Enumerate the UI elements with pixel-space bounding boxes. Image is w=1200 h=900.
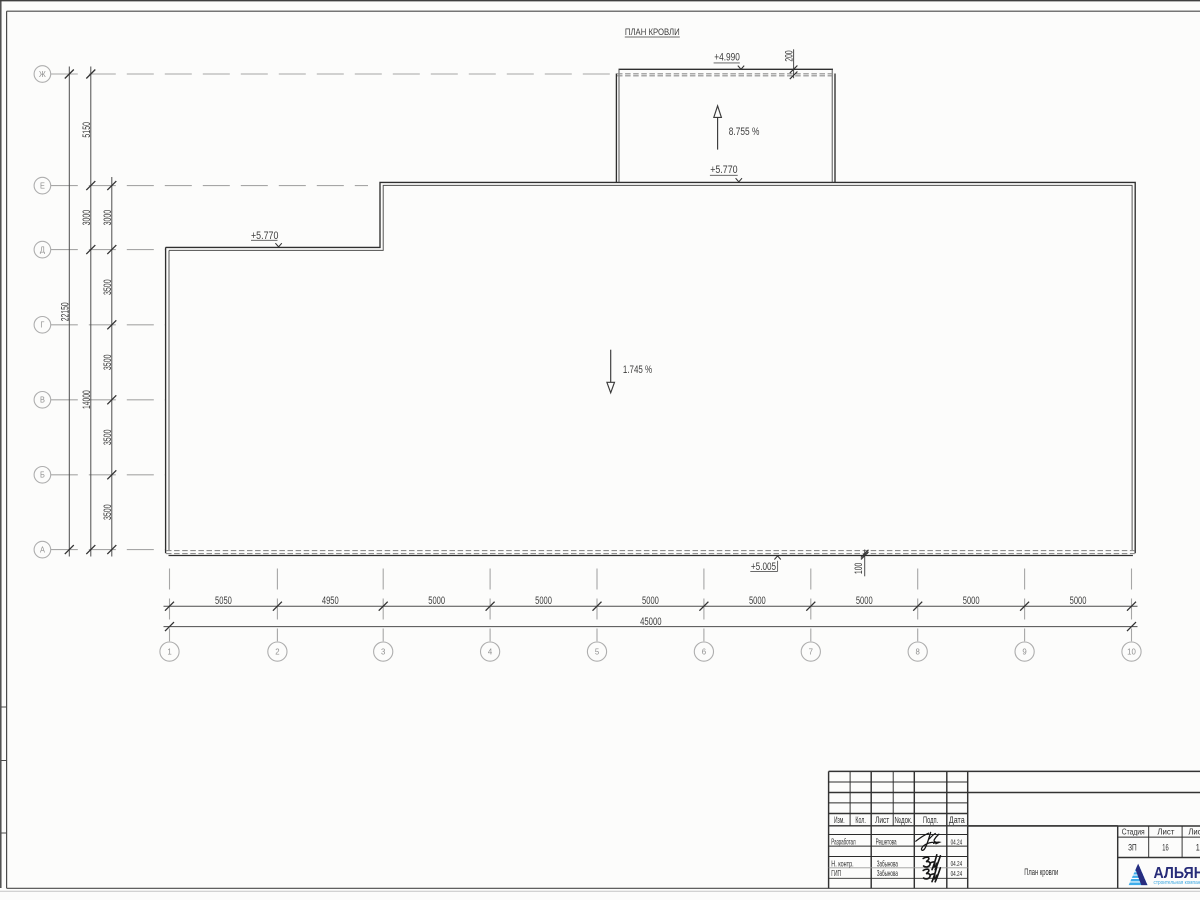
svg-text:Решетова: Решетова xyxy=(876,838,897,847)
svg-text:04.24: 04.24 xyxy=(951,870,963,878)
svg-text:1: 1 xyxy=(167,647,172,656)
svg-text:3500: 3500 xyxy=(101,355,113,371)
svg-text:Стадия: Стадия xyxy=(1122,827,1145,837)
svg-text:Ж: Ж xyxy=(39,70,46,79)
svg-text:+4.990: +4.990 xyxy=(714,52,740,64)
svg-text:14000: 14000 xyxy=(80,390,92,409)
svg-text:Кол.: Кол. xyxy=(855,815,865,826)
svg-text:5000: 5000 xyxy=(1070,595,1087,608)
svg-text:ГИП: ГИП xyxy=(831,870,841,879)
svg-text:5000: 5000 xyxy=(963,595,980,608)
svg-text:План кровли: План кровли xyxy=(1024,867,1058,878)
svg-text:Забынова: Забынова xyxy=(877,859,898,869)
svg-text:5000: 5000 xyxy=(428,595,445,608)
svg-text:8.755 %: 8.755 % xyxy=(729,126,760,138)
svg-text:3: 3 xyxy=(381,647,386,656)
svg-text:1.745 %: 1.745 % xyxy=(623,364,653,377)
svg-text:Б: Б xyxy=(40,470,45,479)
svg-text:Разработал: Разработал xyxy=(831,837,855,847)
svg-text:Е: Е xyxy=(40,181,45,190)
svg-text:5050: 5050 xyxy=(215,595,232,608)
svg-text:7: 7 xyxy=(809,647,814,656)
svg-text:Забынова: Забынова xyxy=(877,869,898,879)
svg-text:3500: 3500 xyxy=(101,504,113,520)
svg-text:Изм.: Изм. xyxy=(834,815,845,826)
svg-text:Подп.: Подп. xyxy=(923,815,938,826)
svg-text:Дата: Дата xyxy=(949,815,965,825)
svg-text:№док.: №док. xyxy=(894,815,912,825)
svg-text:+5.770: +5.770 xyxy=(710,164,738,176)
svg-text:строительная компания: строительная компания xyxy=(1154,881,1200,886)
svg-text:8: 8 xyxy=(916,647,921,656)
svg-text:Лист: Лист xyxy=(875,815,890,825)
svg-text:5000: 5000 xyxy=(856,595,873,608)
svg-text:А: А xyxy=(40,545,46,554)
svg-text:5000: 5000 xyxy=(642,595,659,608)
svg-text:45000: 45000 xyxy=(640,616,661,629)
svg-text:17: 17 xyxy=(1196,842,1200,853)
svg-text:10: 10 xyxy=(1127,647,1136,656)
svg-text:В: В xyxy=(40,395,45,404)
svg-text:04.24: 04.24 xyxy=(951,860,963,868)
svg-text:3000: 3000 xyxy=(101,210,113,226)
svg-text:Лист: Лист xyxy=(1157,827,1174,836)
svg-text:АЛЬЯНС: АЛЬЯНС xyxy=(1154,865,1200,882)
svg-text:Листов: Листов xyxy=(1188,827,1200,836)
svg-text:2: 2 xyxy=(275,647,280,656)
svg-text:5: 5 xyxy=(595,647,600,656)
svg-text:Н. контр.: Н. контр. xyxy=(831,860,853,868)
svg-text:22150: 22150 xyxy=(59,302,71,321)
svg-text:04.24: 04.24 xyxy=(951,838,963,846)
svg-text:5000: 5000 xyxy=(535,595,552,608)
svg-text:200: 200 xyxy=(783,50,795,61)
svg-text:4950: 4950 xyxy=(322,595,339,608)
svg-text:16: 16 xyxy=(1162,842,1169,853)
svg-text:100: 100 xyxy=(852,563,864,574)
svg-text:ПЛАН КРОВЛИ: ПЛАН КРОВЛИ xyxy=(625,26,680,37)
svg-text:9: 9 xyxy=(1022,647,1027,656)
svg-text:5000: 5000 xyxy=(749,595,766,608)
svg-text:6: 6 xyxy=(702,647,707,656)
svg-text:4: 4 xyxy=(488,647,493,656)
svg-text:3500: 3500 xyxy=(101,279,113,295)
svg-text:5150: 5150 xyxy=(80,122,92,138)
svg-text:Д: Д xyxy=(40,245,46,254)
svg-text:ЗП: ЗП xyxy=(1128,842,1137,853)
svg-text:3000: 3000 xyxy=(80,210,92,226)
svg-text:3500: 3500 xyxy=(101,430,113,446)
